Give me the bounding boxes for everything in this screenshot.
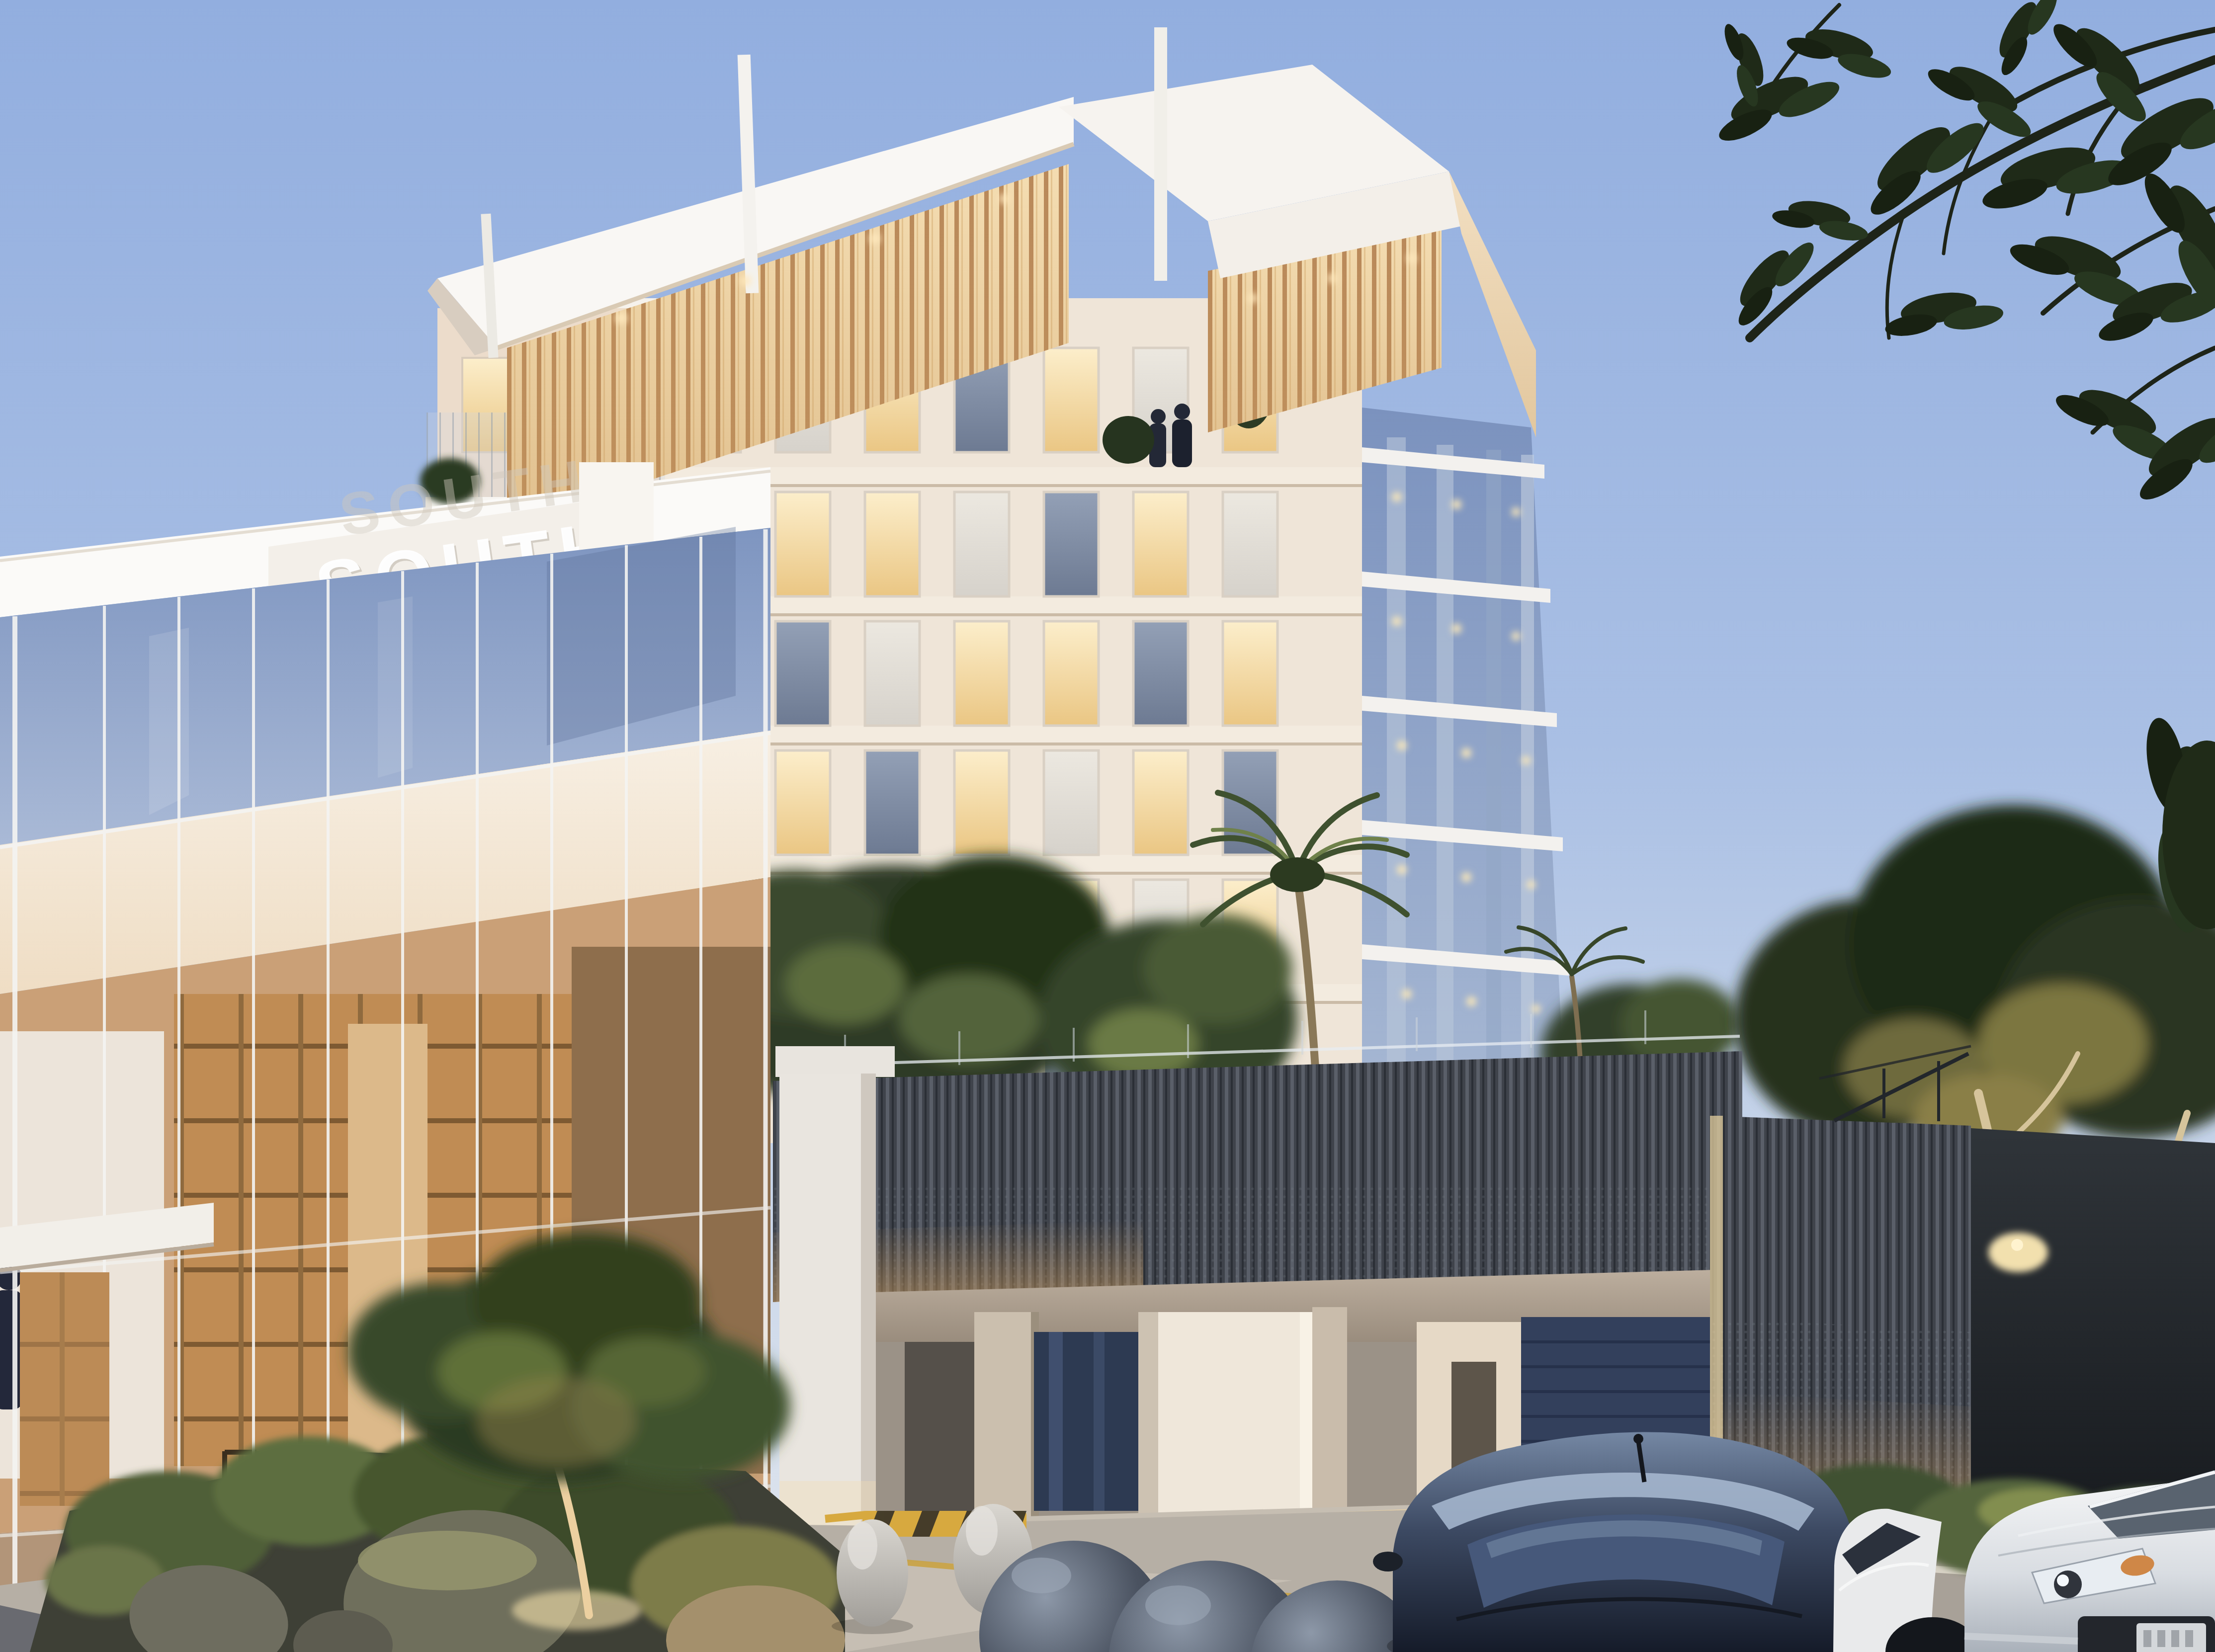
license-plate [2136,1623,2206,1652]
scene-canvas: SOUTH SOUTH SOUTH [0,0,2215,1652]
sedan-mirror [1373,1552,1403,1571]
